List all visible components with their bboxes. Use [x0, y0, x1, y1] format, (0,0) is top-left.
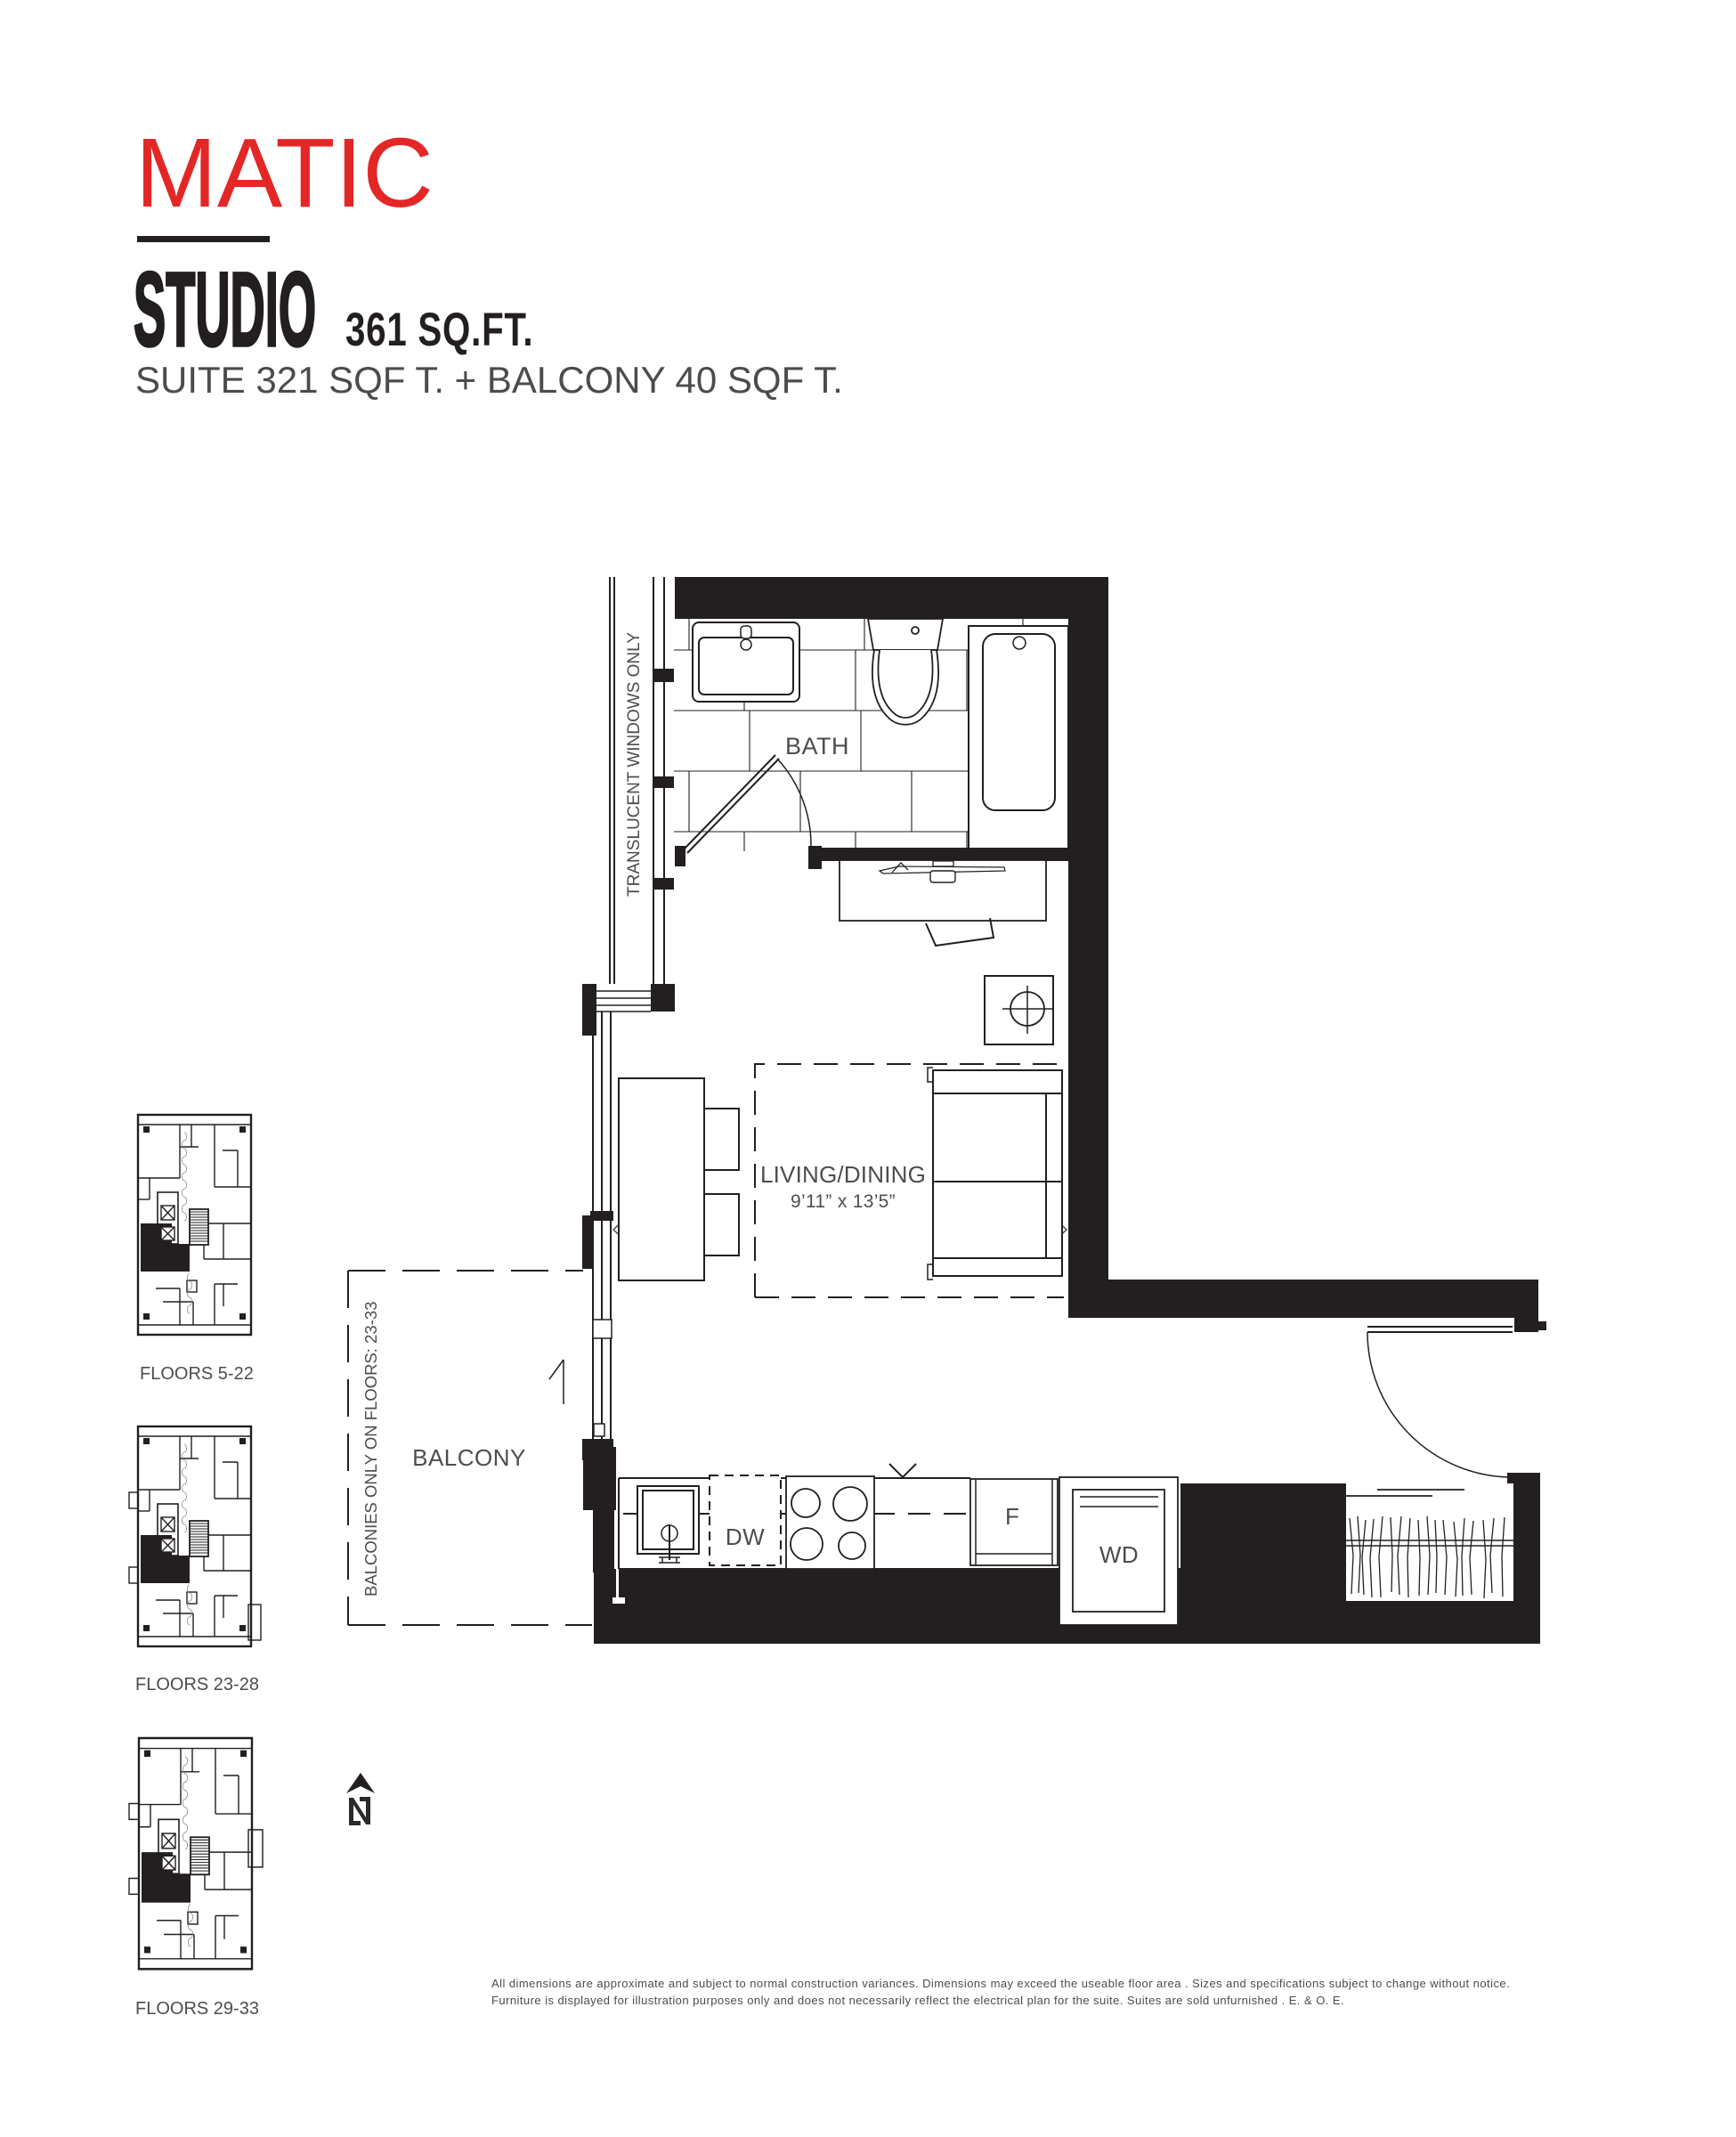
svg-text:WD: WD: [1099, 1541, 1139, 1568]
svg-text:BALCONY: BALCONY: [412, 1444, 526, 1471]
svg-text:DW: DW: [726, 1524, 765, 1550]
svg-text:BALCONIES ONLY ON FLOORS: 23-3: BALCONIES ONLY ON FLOORS: 23-33: [361, 1302, 380, 1597]
svg-text:STUDIO: STUDIO: [134, 252, 316, 369]
svg-text:9’11” x 13’5”: 9’11” x 13’5”: [791, 1191, 896, 1212]
svg-text:FLOORS 5-22: FLOORS 5-22: [140, 1364, 254, 1384]
svg-text:LIVING/DINING: LIVING/DINING: [760, 1161, 926, 1188]
svg-text:BATH: BATH: [785, 733, 849, 760]
svg-text:TRANSLUCENT WINDOWS ONLY: TRANSLUCENT WINDOWS ONLY: [625, 632, 644, 897]
svg-text:SUITE 321 SQF T. + BALCONY 40: SUITE 321 SQF T. + BALCONY 40 SQF T.: [135, 359, 843, 401]
svg-text:All dimensions are approximate: All dimensions are approximate and subje…: [491, 1977, 1510, 1990]
svg-text:Furniture is displayed for ill: Furniture is displayed for illustration …: [491, 1994, 1344, 2007]
svg-text:361 SQ.FT.: 361 SQ.FT.: [345, 303, 533, 356]
svg-text:FLOORS 29-33: FLOORS 29-33: [135, 1999, 259, 2019]
svg-text:MATIC: MATIC: [135, 118, 434, 228]
svg-text:F: F: [1005, 1503, 1019, 1530]
svg-text:FLOORS 23-28: FLOORS 23-28: [135, 1675, 259, 1694]
